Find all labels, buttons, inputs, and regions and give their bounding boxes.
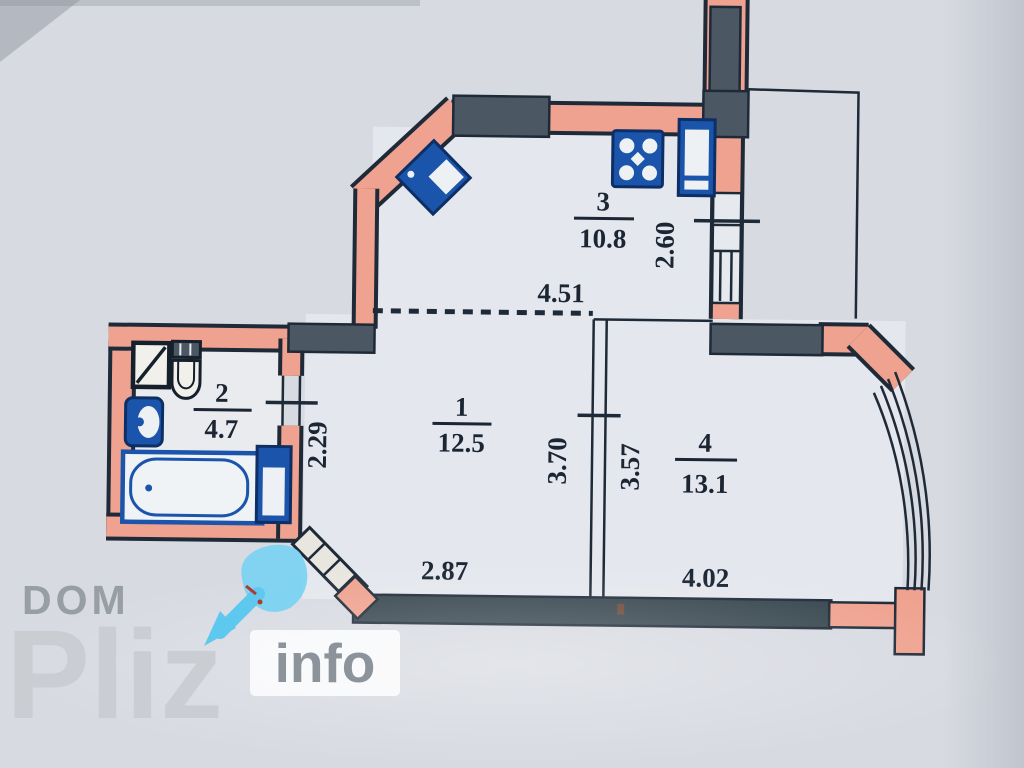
dim-hall-depth: 3.70: [542, 437, 573, 485]
room-3-number: 3: [596, 186, 610, 216]
stove-icon: [612, 131, 663, 188]
fridge-icon: [678, 119, 715, 195]
room-4-number: 4: [698, 428, 712, 458]
room-4-area: 13.1: [681, 468, 729, 499]
floor-plan-photo: 1 12.5 2 4.7 3 10.8 4 13.1 4.51 2.87 4.0…: [0, 0, 1024, 768]
room-1-area: 12.5: [437, 427, 485, 458]
washing-machine-icon: [133, 343, 170, 387]
dim-room4-depth: 3.57: [615, 443, 646, 491]
bathtub-icon: [122, 452, 263, 524]
sink-icon: [125, 398, 163, 446]
watermark-suffix: info: [275, 632, 376, 694]
dim-kitchen-width: 4.51: [537, 278, 585, 309]
room-2-number: 2: [215, 378, 229, 408]
balcony-outline: [746, 89, 859, 318]
dim-kitchen-depth: 2.60: [649, 221, 680, 269]
water-heater-icon: [256, 446, 291, 522]
watermark-suffix-box: info: [250, 630, 400, 696]
floor-plan: 1 12.5 2 4.7 3 10.8 4 13.1 4.51 2.87 4.0…: [105, 0, 937, 655]
room-3-area: 10.8: [579, 223, 627, 254]
floor-plan-image: 1 12.5 2 4.7 3 10.8 4 13.1 4.51 2.87 4.0…: [0, 0, 1024, 768]
dim-bath-wall: 2.29: [302, 421, 333, 469]
watermark-brand: Pliz: [6, 604, 223, 745]
toilet-icon: [172, 341, 201, 398]
room-1-number: 1: [455, 392, 469, 422]
room-2-area: 4.7: [204, 414, 238, 444]
